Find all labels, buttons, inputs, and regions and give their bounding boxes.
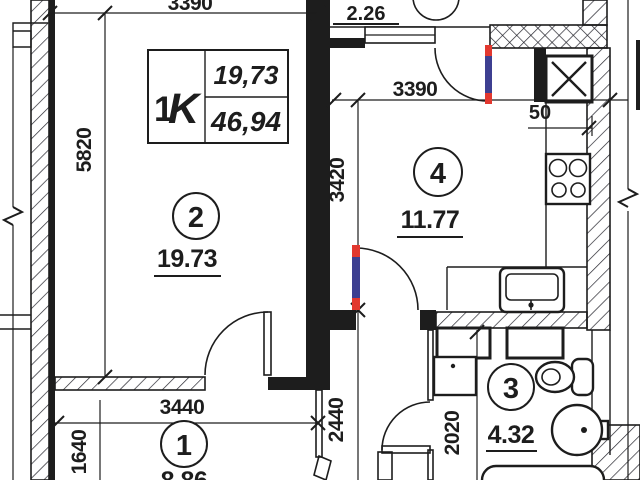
room-area: 2.26 [347, 3, 386, 25]
wall-top-right [490, 25, 607, 48]
bath-cabinet-right [507, 328, 563, 358]
bathtub-icon [482, 466, 604, 480]
room-area: 4.32 [488, 421, 535, 449]
toilet-icon [536, 359, 593, 395]
dim-duct-offset: 50 [529, 102, 551, 124]
room-number: 1 [176, 430, 192, 462]
door-marker-tip [352, 245, 360, 257]
dim-living-width: 3390 [168, 0, 213, 15]
washing-machine-icon [434, 357, 476, 395]
dim-kitchen-width: 3390 [393, 78, 438, 101]
unit-type: K [168, 85, 202, 133]
dim-living-height: 5820 [73, 128, 96, 173]
room-area: 19.73 [157, 245, 217, 273]
door-marker-tip [485, 45, 492, 56]
total-area-value: 46,94 [210, 106, 281, 137]
bath-cabinet-left [437, 328, 490, 358]
floor-plan-drawing: 1 K 19,73 46,94 2 19.73 4 11.77 1 8.86 3… [0, 0, 640, 480]
room-area: 8.86 [161, 467, 208, 480]
kitchen-sink-icon [500, 268, 564, 312]
door-marker-tip [352, 298, 360, 310]
title-block: 1 K 19,73 46,94 [148, 50, 288, 143]
dim-hall-depth: 1640 [68, 430, 91, 475]
floor-plan-canvas: 1 K 19,73 46,94 2 19.73 4 11.77 1 8.86 3… [0, 0, 640, 480]
stove-icon [546, 154, 590, 204]
room-number: 2 [188, 202, 204, 234]
dim-corridor-height: 2440 [325, 398, 348, 443]
balcony-window-icon [365, 27, 435, 43]
dim-hall-width: 3440 [160, 396, 205, 419]
living-area-value: 19,73 [213, 60, 279, 90]
vent-shaft-icon [534, 48, 592, 102]
room-area: 11.77 [401, 206, 460, 234]
wall-hall-top [55, 377, 306, 390]
dim-kitchen-height: 3420 [326, 158, 349, 203]
balcony-right-wall [583, 0, 607, 25]
room-number: 4 [430, 158, 446, 190]
door-marker-tip [485, 93, 492, 104]
room-number: 3 [503, 373, 519, 405]
dim-bath-height: 2020 [441, 411, 464, 456]
room-hall-label: 1 8.86 [161, 421, 208, 480]
